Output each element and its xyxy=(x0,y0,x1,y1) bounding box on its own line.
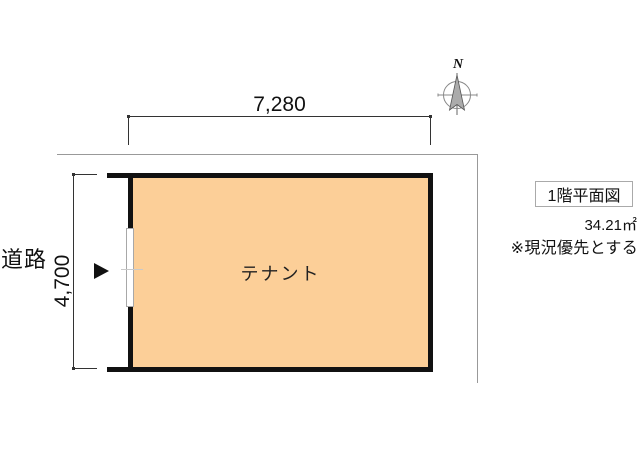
road-label: 道路 xyxy=(1,242,47,274)
wall-top xyxy=(107,173,433,178)
drawing-title-box: 1階平面図 xyxy=(535,181,633,207)
entrance-arrow-icon xyxy=(94,263,109,279)
drawing-title: 1階平面図 xyxy=(548,182,621,206)
note-text: ※現況優先とする xyxy=(498,234,638,258)
property-boundary-line-top xyxy=(57,154,478,155)
entrance-door xyxy=(126,228,134,307)
height-dimension-extension-bottom xyxy=(74,368,97,369)
entrance-door-center-tick xyxy=(121,269,143,270)
wall-bottom xyxy=(107,367,433,372)
wall-left-lower xyxy=(128,307,133,367)
north-label: N xyxy=(446,57,470,73)
height-dimension-extension-top xyxy=(74,174,97,175)
width-dimension-extension-left xyxy=(128,117,129,145)
tenant-room-label: テナント xyxy=(241,260,321,286)
wall-left-upper xyxy=(128,178,133,228)
property-boundary-line-right xyxy=(477,154,478,383)
floor-plan-canvas: 7,280 4,700 道路 テナント N 1階平面図 34.21㎡ ※現況優先… xyxy=(0,0,640,452)
width-dimension-label: 7,280 xyxy=(128,93,431,117)
wall-right xyxy=(428,173,433,372)
height-dimension-label: 4,700 xyxy=(52,231,74,331)
tenant-room: テナント xyxy=(133,178,428,367)
area-value: 34.21㎡ xyxy=(520,214,637,235)
width-dimension-extension-right xyxy=(430,117,431,145)
height-dimension-tick-bottom xyxy=(72,367,75,370)
height-dimension-tick-top xyxy=(72,173,75,176)
